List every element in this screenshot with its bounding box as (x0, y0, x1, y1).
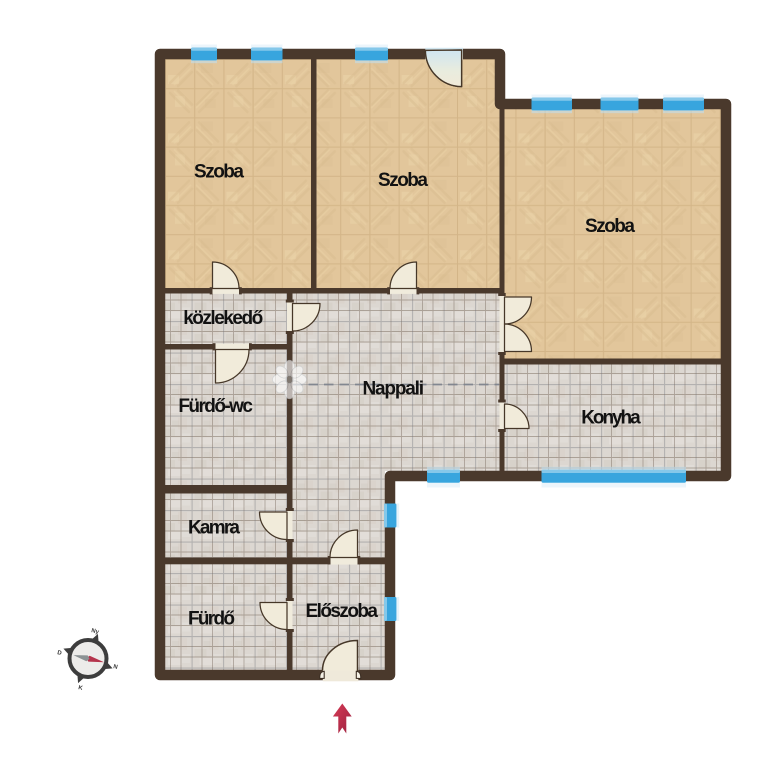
svg-text:Konyha: Konyha (581, 408, 641, 429)
svg-text:Fürdő: Fürdő (188, 609, 235, 630)
svg-text:Előszoba: Előszoba (306, 601, 379, 622)
svg-text:Fürdő-wc: Fürdő-wc (178, 396, 253, 417)
svg-text:Szoba: Szoba (585, 216, 635, 237)
svg-text:Szoba: Szoba (194, 162, 244, 183)
svg-text:közlekedő: közlekedő (183, 308, 263, 329)
svg-text:Nappali: Nappali (363, 379, 425, 400)
svg-text:Kamra: Kamra (188, 518, 240, 539)
svg-text:Szoba: Szoba (378, 170, 428, 191)
